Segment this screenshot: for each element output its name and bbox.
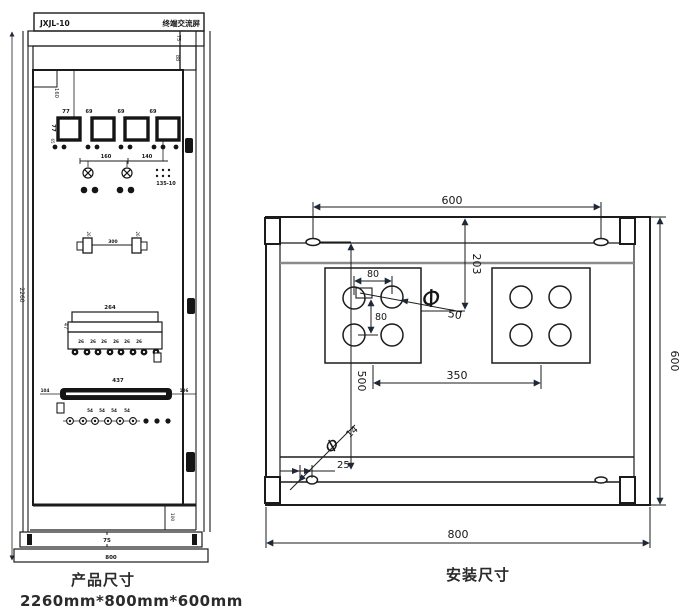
hinge-middle bbox=[187, 298, 195, 314]
panel-top-offset-label: 160 bbox=[53, 88, 59, 98]
terminal-studs bbox=[72, 349, 160, 356]
nameplate-title: 终端交流屏 bbox=[162, 18, 201, 28]
top-band-dim: 75 bbox=[175, 35, 181, 41]
corner-bracket-tl bbox=[265, 218, 280, 244]
corner-bracket-br bbox=[620, 477, 635, 503]
meter-1 bbox=[58, 118, 80, 140]
bottom-compartment-label: 100 bbox=[169, 513, 175, 522]
bracket-span-label: 300 bbox=[108, 239, 117, 245]
meter-3 bbox=[125, 118, 148, 140]
entry-dia-label: 50 bbox=[447, 307, 463, 322]
lower-pitch-label: 54 bbox=[111, 408, 117, 413]
relay-label: 135-10 bbox=[156, 181, 176, 187]
door-lock bbox=[186, 452, 195, 472]
install-view-caption: 安装尺寸 bbox=[413, 564, 543, 585]
terminal-block: 26 26 26 26 26 26 bbox=[68, 332, 162, 362]
dim-bolt-offset: 25 bbox=[280, 460, 350, 478]
product-view-caption: 产品尺寸 bbox=[0, 569, 206, 590]
cabinet-width-label: 800 bbox=[105, 555, 117, 561]
busbar-left-offset-label: 104 bbox=[41, 388, 50, 393]
lamp-span-left-label: 160 bbox=[101, 154, 112, 160]
dim-bolt-offset-label: 25 bbox=[337, 460, 350, 471]
dim-center-span-label: 350 bbox=[447, 369, 468, 382]
base: 800 bbox=[14, 549, 208, 562]
meter-width-label: 77 bbox=[62, 109, 70, 115]
meter-bottom-label: 65 bbox=[50, 138, 55, 144]
dim-overall-width-label: 800 bbox=[448, 528, 469, 541]
dim-hole-pitch-h: 80 bbox=[354, 269, 392, 295]
door-hinges bbox=[185, 138, 195, 472]
entry-hole bbox=[510, 286, 532, 308]
nameplate-model: JXJL-10 bbox=[39, 19, 70, 28]
terminal-pitch-label: 26 bbox=[113, 339, 119, 344]
lower-terminal-row: 54 54 54 54 bbox=[63, 408, 171, 424]
lower-pitch-label: 54 bbox=[99, 408, 105, 413]
corner-bracket-bl bbox=[265, 477, 280, 503]
lower-pitch-label: 54 bbox=[124, 408, 130, 413]
dim-hole-pitch-v-label: 80 bbox=[375, 312, 387, 323]
dim-overall-height-label: 2260 bbox=[18, 287, 25, 302]
support-brackets: 26 26 300 bbox=[77, 231, 147, 253]
bottom-compartment: 100 bbox=[30, 505, 196, 530]
plinth-height-label: 75 bbox=[103, 538, 111, 544]
slot-bottom-right bbox=[595, 477, 607, 483]
indicator-lamp-2 bbox=[122, 168, 132, 178]
corner-bracket-tr bbox=[620, 218, 635, 244]
strip-height-label: 47 bbox=[62, 323, 68, 329]
meter-4 bbox=[157, 118, 179, 140]
slot-top-right bbox=[594, 239, 608, 246]
busbar: 437 104 106 bbox=[40, 378, 196, 413]
dim-center-span: 350 bbox=[373, 365, 541, 389]
entry-hole bbox=[549, 324, 571, 346]
terminal-pitch-label: 26 bbox=[124, 339, 130, 344]
mounting-frame bbox=[265, 217, 650, 505]
dim-slot-to-bolt-label: 500 bbox=[355, 371, 368, 392]
nameplate: JXJL-10 终端交流屏 bbox=[34, 13, 204, 31]
vent-band: 88 bbox=[33, 46, 196, 70]
bolt-dia-label: 14 bbox=[344, 424, 360, 440]
cabinet-walls bbox=[23, 31, 210, 532]
wiring-strip: 264 47 bbox=[62, 305, 162, 332]
meter-height-label: 77 bbox=[50, 124, 56, 132]
lamp-span-right-label: 140 bbox=[142, 154, 153, 160]
dim-top-to-hole-label: 203 bbox=[470, 254, 483, 275]
meter-gap-label: 69 bbox=[86, 109, 93, 115]
gland-plate-left bbox=[325, 268, 421, 363]
installation-plan-view: 600 203 80 80 Φ 50 350 500 bbox=[250, 0, 692, 613]
gland-plate-right bbox=[492, 268, 590, 363]
dim-slot-span-label: 600 bbox=[442, 194, 463, 207]
strip-width-label: 264 bbox=[104, 305, 116, 311]
terminal-pitch-label: 26 bbox=[78, 339, 84, 344]
drawing-sheet: { "colors": { "line": "#1b1b1b", "arrow"… bbox=[0, 0, 692, 613]
bracket-width-label: 26 bbox=[86, 231, 91, 237]
bracket-width-label: 26 bbox=[135, 231, 140, 237]
relay-cluster bbox=[156, 169, 170, 177]
indicator-dots bbox=[53, 145, 179, 150]
terminal-pitch-label: 26 bbox=[101, 339, 107, 344]
busbar-length-label: 437 bbox=[112, 378, 124, 384]
meter-gap-label: 69 bbox=[150, 109, 157, 115]
terminal-pitch-label: 26 bbox=[136, 339, 142, 344]
panel-meters: 77 69 69 69 77 65 bbox=[50, 109, 179, 144]
busbar-right-offset-label: 106 bbox=[180, 388, 189, 393]
lower-pitch-label: 54 bbox=[87, 408, 93, 413]
slot-top-left bbox=[306, 239, 320, 246]
dim-hole-pitch-h-label: 80 bbox=[367, 269, 379, 280]
dim-overall-width: 800 bbox=[266, 507, 650, 548]
bracket-right bbox=[141, 242, 147, 250]
meter-2 bbox=[92, 118, 114, 140]
meter-gap-label: 69 bbox=[118, 109, 125, 115]
dim-overall-height: 600 bbox=[650, 217, 681, 505]
vent-band-dim: 88 bbox=[174, 55, 180, 61]
indicator-lamp-1 bbox=[83, 168, 93, 178]
plinth: 75 bbox=[20, 532, 202, 547]
terminal-pitch-label: 26 bbox=[90, 339, 96, 344]
bracket-left bbox=[77, 242, 83, 250]
dim-overall-height-label: 600 bbox=[668, 351, 681, 372]
push-buttons bbox=[81, 187, 135, 194]
entry-hole bbox=[549, 286, 571, 308]
entry-dia-symbol: Φ bbox=[420, 283, 443, 314]
product-size-note: 2260mm*800mm*600mm bbox=[20, 592, 243, 610]
entry-hole bbox=[510, 324, 532, 346]
dim-slot-to-bolt: 500 bbox=[320, 242, 368, 469]
product-front-view: 2260 JXJL-10 终端交流屏 75 88 160 bbox=[0, 0, 230, 613]
hinge-top bbox=[185, 138, 193, 153]
entry-hole bbox=[381, 324, 403, 346]
top-band: 75 bbox=[28, 31, 204, 46]
